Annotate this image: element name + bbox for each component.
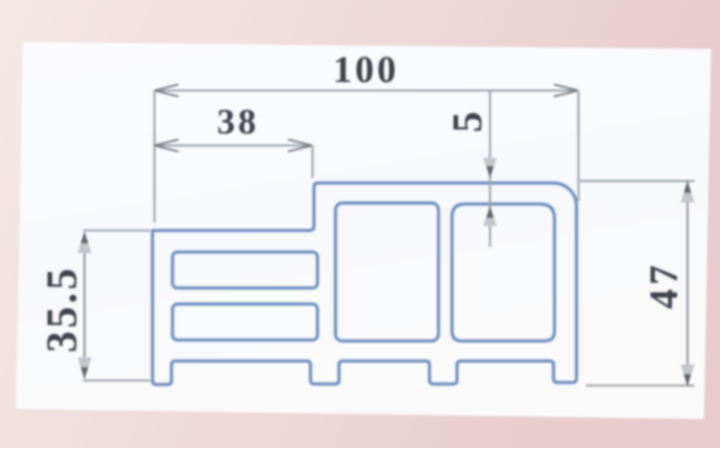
svg-text:35.5: 35.5 [39,265,86,352]
svg-text:38: 38 [217,102,259,142]
svg-text:47: 47 [641,261,686,309]
svg-text:100: 100 [333,49,399,91]
svg-text:5: 5 [446,112,492,133]
